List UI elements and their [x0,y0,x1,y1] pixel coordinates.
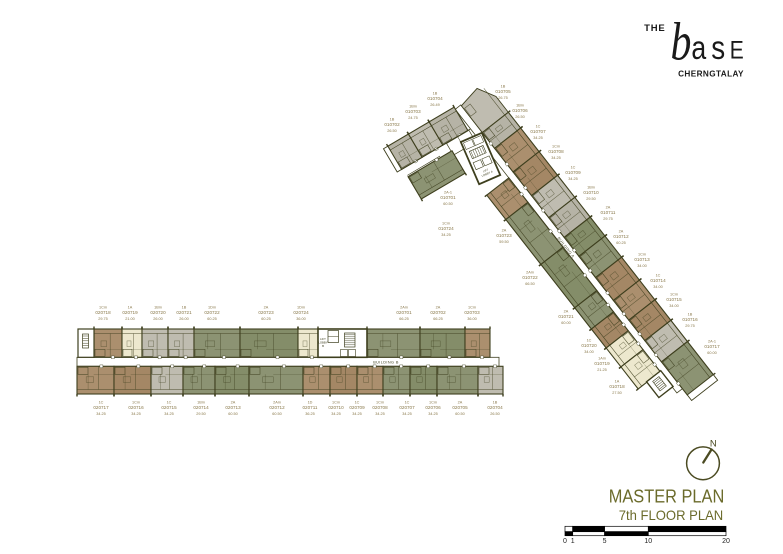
svg-text:1B: 1B [433,91,438,95]
svg-text:010710: 010710 [583,190,599,195]
svg-text:34.00: 34.00 [584,350,594,354]
svg-text:E: E [730,36,744,64]
svg-text:1Bm: 1Bm [516,103,524,107]
svg-text:29.75: 29.75 [685,324,695,328]
svg-text:60.25: 60.25 [207,317,217,321]
svg-text:2A: 2A [619,229,624,233]
svg-text:60.00: 60.00 [561,321,571,325]
svg-text:29.75: 29.75 [98,317,108,321]
svg-text:1Cm: 1Cm [638,252,646,256]
svg-text:36.00: 36.00 [467,317,477,321]
svg-text:010705: 010705 [495,89,511,94]
svg-text:21.00: 21.00 [125,317,135,321]
svg-text:34.00: 34.00 [653,285,663,289]
svg-text:2Am: 2Am [526,270,534,274]
svg-text:020704: 020704 [487,405,503,410]
svg-text:010723: 010723 [496,233,512,238]
svg-text:34.25: 34.25 [568,177,578,181]
svg-text:1Bm: 1Bm [587,185,595,189]
svg-text:1Bm: 1Bm [154,305,162,309]
svg-text:29.50: 29.50 [586,197,596,201]
svg-text:020714: 020714 [193,405,209,410]
svg-text:020719: 020719 [122,310,138,315]
svg-text:60.00: 60.00 [707,351,717,355]
svg-text:CHERNGTALAY: CHERNGTALAY [678,69,744,78]
svg-text:020711: 020711 [303,405,318,410]
svg-text:2A: 2A [436,305,441,309]
svg-text:34.25: 34.25 [352,412,362,416]
svg-text:010724: 010724 [438,226,454,231]
svg-text:010720: 010720 [581,343,597,348]
svg-text:020701: 020701 [396,310,412,315]
svg-text:010702: 010702 [384,122,400,127]
svg-text:2A: 2A [264,305,269,309]
svg-text:010706: 010706 [512,108,528,113]
svg-text:2A: 2A [231,400,236,404]
svg-text:1Cm: 1Cm [429,400,437,404]
svg-text:b: b [671,12,692,71]
svg-text:2A-1: 2A-1 [708,339,716,343]
svg-text:60.50: 60.50 [272,412,282,416]
svg-text:010709: 010709 [565,170,581,175]
svg-text:60.50: 60.50 [443,202,453,206]
svg-text:010719: 010719 [594,361,610,366]
svg-text:34.25: 34.25 [441,233,451,237]
svg-text:66.25: 66.25 [399,317,409,321]
svg-text:34.25: 34.25 [131,412,141,416]
svg-text:7th FLOOR PLAN: 7th FLOOR PLAN [619,507,723,523]
svg-text:1B: 1B [493,400,498,404]
svg-text:MASTER PLAN: MASTER PLAN [609,486,725,507]
svg-text:020706: 020706 [425,405,441,410]
svg-text:020707: 020707 [399,405,415,410]
svg-text:1Cm: 1Cm [442,221,450,225]
svg-text:1Cm: 1Cm [670,292,678,296]
svg-text:34.25: 34.25 [375,412,385,416]
svg-text:1B: 1B [688,312,693,316]
svg-text:010715: 010715 [666,297,682,302]
svg-text:20: 20 [722,538,730,545]
svg-text:26.00: 26.00 [153,317,163,321]
svg-text:1C: 1C [536,124,541,128]
svg-text:21.25: 21.25 [597,368,607,372]
svg-text:020720: 020720 [150,310,166,315]
svg-text:020703: 020703 [464,310,480,315]
svg-text:020710: 020710 [328,405,344,410]
svg-text:10: 10 [644,538,652,545]
svg-text:N: N [710,439,717,450]
svg-text:s: s [711,29,725,66]
svg-text:66.25: 66.25 [433,317,443,321]
svg-text:020712: 020712 [269,405,285,410]
svg-text:010722: 010722 [522,275,538,280]
svg-text:a: a [691,30,706,66]
svg-text:34.25: 34.25 [551,156,561,160]
svg-text:020717: 020717 [93,405,109,410]
svg-text:1Cm: 1Cm [376,400,384,404]
svg-text:010704: 010704 [427,96,443,101]
svg-text:60.50: 60.50 [228,412,238,416]
svg-text:1Dm: 1Dm [208,305,216,309]
svg-text:36.25: 36.25 [305,412,315,416]
svg-text:34.00: 34.00 [637,264,647,268]
svg-text:010721: 010721 [558,314,574,319]
svg-text:29.75: 29.75 [603,217,613,221]
svg-text:010718: 010718 [609,384,625,389]
svg-text:2A: 2A [606,205,611,209]
svg-text:1B: 1B [182,305,187,309]
svg-text:26.75: 26.75 [498,96,508,100]
svg-text:1Bm: 1Bm [409,104,417,108]
svg-text:1C: 1C [355,400,360,404]
svg-text:1Am: 1Am [598,356,606,360]
svg-text:60.25: 60.25 [616,241,626,245]
svg-text:010716: 010716 [682,317,698,322]
svg-text:1C: 1C [656,273,661,277]
svg-text:1B: 1B [390,117,395,121]
svg-text:59.50: 59.50 [499,240,509,244]
svg-text:020713: 020713 [225,405,241,410]
svg-text:2A: 2A [564,309,569,313]
svg-text:60.50: 60.50 [455,412,465,416]
svg-text:1Cm: 1Cm [468,305,476,309]
svg-text:020709: 020709 [349,405,365,410]
svg-text:34.25: 34.25 [428,412,438,416]
svg-text:020718: 020718 [95,310,111,315]
svg-text:34.25: 34.25 [533,136,543,140]
svg-text:34.25: 34.25 [402,412,412,416]
svg-text:010703: 010703 [405,109,421,114]
svg-text:010707: 010707 [530,129,546,134]
svg-text:020722: 020722 [204,310,220,315]
svg-text:1C: 1C [571,165,576,169]
svg-text:26.50: 26.50 [387,129,397,133]
svg-text:1Dm: 1Dm [297,305,305,309]
svg-text:THE: THE [644,23,665,34]
svg-text:34.25: 34.25 [96,412,106,416]
svg-text:34.25: 34.25 [164,412,174,416]
svg-text:020716: 020716 [128,405,144,410]
svg-text:2A-1: 2A-1 [444,190,452,194]
svg-text:1Cm: 1Cm [552,144,560,148]
svg-text:26.50: 26.50 [515,115,525,119]
svg-text:020702: 020702 [430,310,446,315]
svg-text:1Cm: 1Cm [132,400,140,404]
svg-text:010712: 010712 [613,234,629,239]
svg-text:010717: 010717 [704,344,720,349]
svg-text:2A: 2A [458,400,463,404]
svg-text:1C: 1C [405,400,410,404]
svg-text:020705: 020705 [452,405,468,410]
svg-text:020715: 020715 [161,405,177,410]
svg-text:60.25: 60.25 [261,317,271,321]
svg-text:0: 0 [563,538,567,545]
svg-text:29.50: 29.50 [196,412,206,416]
svg-text:020721: 020721 [176,310,192,315]
svg-text:2A: 2A [502,228,507,232]
svg-text:1C: 1C [587,338,592,342]
svg-text:26.00: 26.00 [179,317,189,321]
svg-text:36.00: 36.00 [296,317,306,321]
svg-text:34.25: 34.25 [331,412,341,416]
svg-text:020708: 020708 [372,405,388,410]
svg-text:010714: 010714 [650,278,666,283]
svg-text:26.50: 26.50 [490,412,500,416]
svg-text:010701: 010701 [440,195,456,200]
svg-text:010713: 010713 [634,257,650,262]
svg-text:010711: 010711 [601,210,616,215]
svg-text:020724: 020724 [293,310,309,315]
svg-text:020723: 020723 [258,310,274,315]
svg-text:1: 1 [571,538,575,545]
svg-text:26.49: 26.49 [430,103,440,107]
svg-text:27.50: 27.50 [612,391,622,395]
svg-text:1Cm: 1Cm [332,400,340,404]
svg-text:5: 5 [603,538,607,545]
svg-text:2Am: 2Am [400,305,408,309]
svg-text:34.00: 34.00 [669,304,679,308]
svg-text:010708: 010708 [548,149,564,154]
svg-text:1C: 1C [99,400,104,404]
svg-text:1B: 1B [501,84,506,88]
svg-text:BUILDING B: BUILDING B [373,361,399,365]
svg-text:1A: 1A [615,379,620,383]
svg-text:66.50: 66.50 [525,282,535,286]
svg-text:1C: 1C [167,400,172,404]
svg-text:24.75: 24.75 [408,116,418,120]
svg-text:1A: 1A [128,305,133,309]
svg-text:1Cm: 1Cm [99,305,107,309]
svg-text:1D: 1D [308,400,313,404]
svg-text:B: B [322,344,324,348]
svg-text:2Am: 2Am [273,400,281,404]
svg-text:1Bm: 1Bm [197,400,205,404]
